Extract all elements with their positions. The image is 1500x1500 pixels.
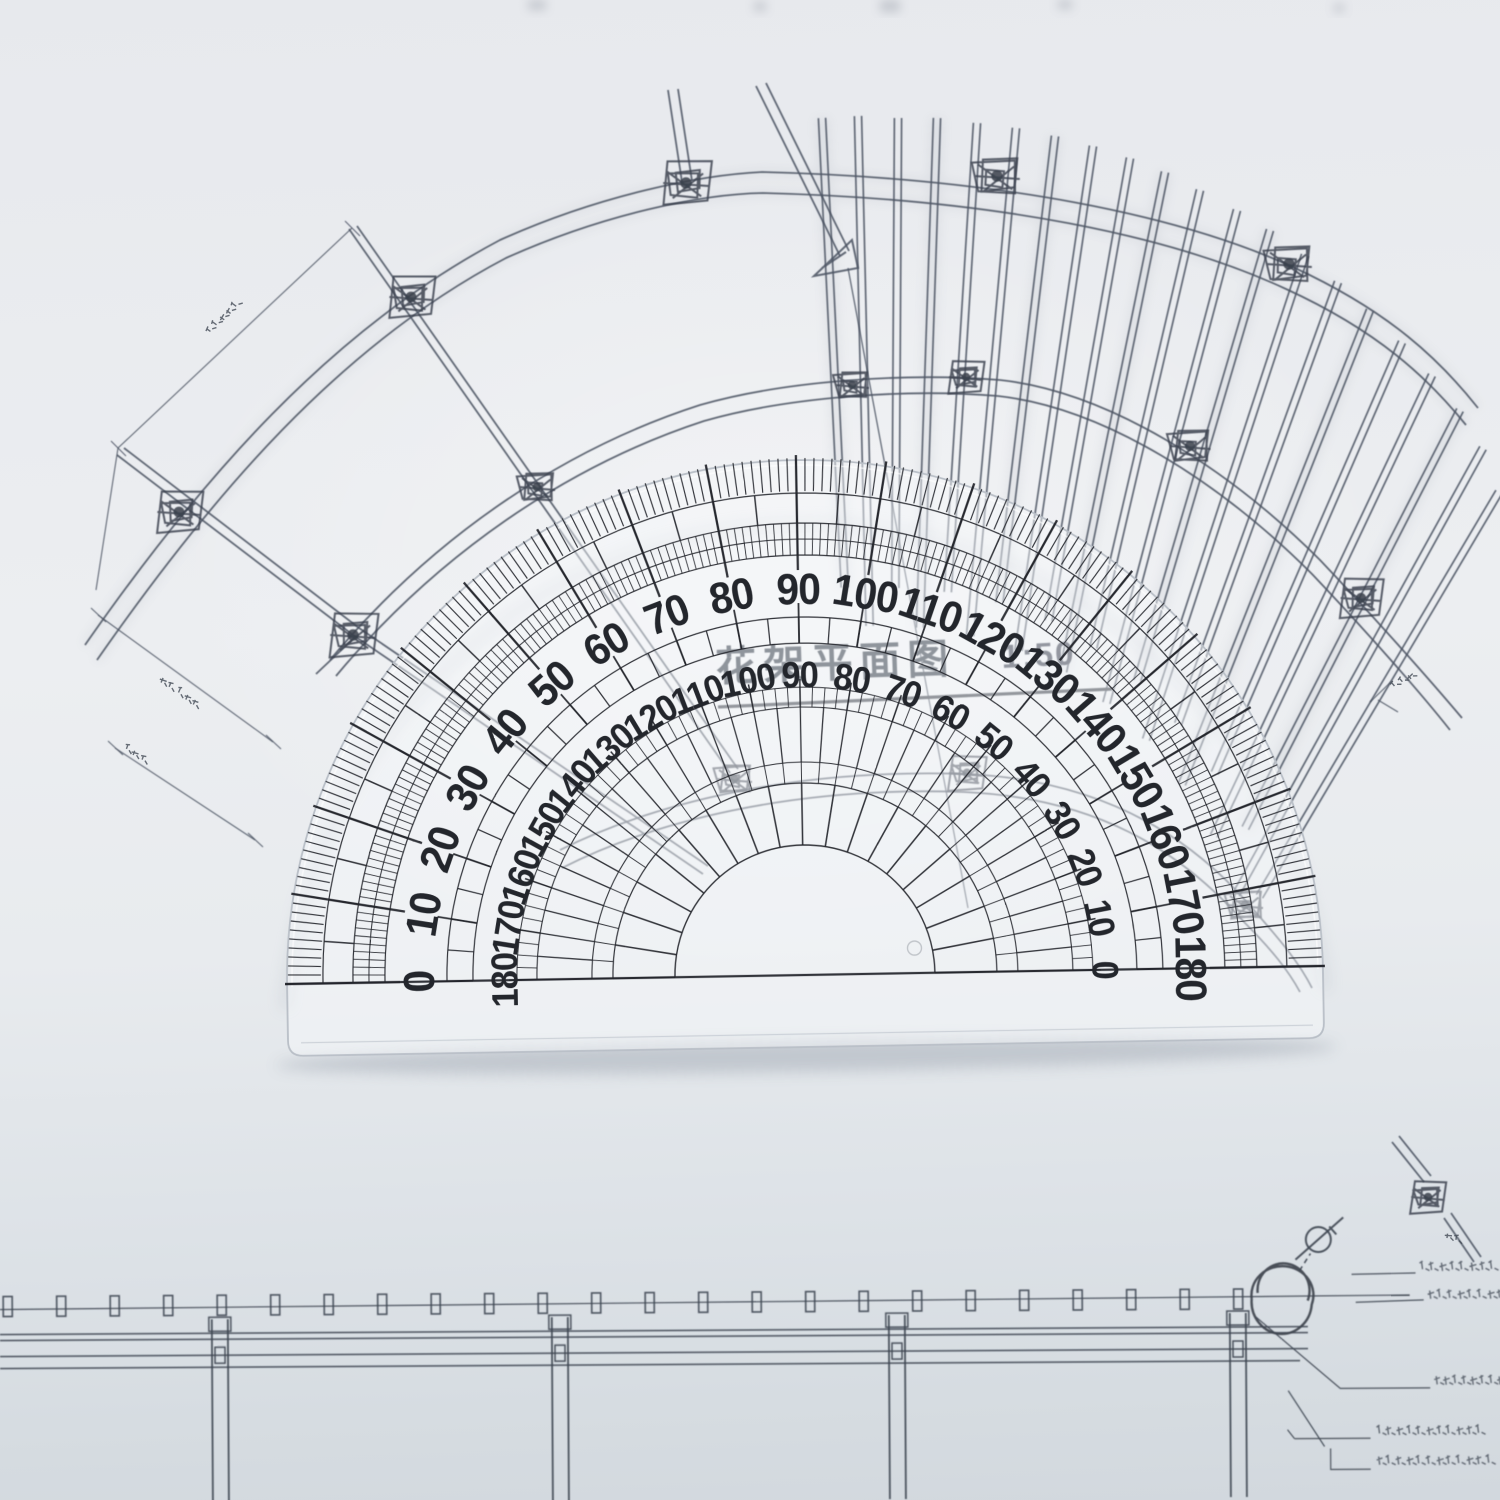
elevation-column — [886, 1313, 909, 1499]
illegible-text — [1419, 1260, 1498, 1271]
illegible-text — [1377, 1454, 1496, 1465]
detail-callout-leader — [1299, 1254, 1310, 1271]
annotation-leaders — [1256, 1273, 1431, 1470]
paper-blemishes — [528, 0, 1344, 12]
elevation-column — [209, 1317, 232, 1500]
rafter-end — [1180, 1289, 1189, 1309]
rafter-end — [3, 1297, 12, 1317]
rafter-end — [110, 1296, 119, 1316]
rafter-end — [378, 1294, 387, 1314]
illegible-annotations — [1375, 1260, 1500, 1465]
beam-stub-top — [668, 89, 692, 182]
rafter-end — [164, 1296, 173, 1316]
rafter-end — [859, 1291, 868, 1311]
outer-degree-80: 80 — [705, 569, 757, 625]
elevation-drawing — [0, 1216, 1500, 1500]
illegible-text — [1434, 1375, 1500, 1386]
elevation-beams — [0, 1327, 1308, 1369]
rafter-end — [913, 1291, 922, 1311]
rafter-end — [1073, 1290, 1082, 1310]
rafter-end — [1127, 1290, 1136, 1310]
illegible-text — [1428, 1288, 1500, 1299]
rafter-end — [485, 1294, 494, 1314]
inner-degree-180: 180 — [484, 952, 526, 1007]
illegible-text — [204, 297, 243, 334]
plan-node — [1410, 1181, 1446, 1213]
rafter-end — [1234, 1289, 1243, 1309]
plan-node — [948, 361, 984, 394]
rafter-end — [217, 1295, 226, 1315]
outer-degree-10: 10 — [397, 889, 452, 940]
rafter-end — [271, 1295, 280, 1315]
elevation-column — [549, 1315, 572, 1500]
outer-degree-100: 100 — [829, 565, 901, 623]
outer-degree-90: 90 — [776, 565, 820, 614]
rafter-end — [324, 1295, 333, 1315]
elevation-top-rail — [0, 1295, 1410, 1310]
rafter-end — [57, 1296, 66, 1316]
rafter-end — [966, 1291, 975, 1311]
inner-degree-90: 90 — [781, 654, 818, 696]
rafter-end — [538, 1293, 547, 1313]
illegible-text — [159, 674, 204, 709]
inner-degree-80: 80 — [831, 655, 874, 702]
elevation-columns — [209, 1311, 1250, 1500]
outer-degree-180: 180 — [1165, 935, 1215, 1001]
photo-stage: 花架平面图 1:50 01020304050607080901001101201… — [0, 0, 1500, 1500]
scene-photo: 花架平面图 1:50 01020304050607080901001101201… — [0, 0, 1500, 1500]
illegible-text — [1376, 1425, 1485, 1436]
rafter-end — [1020, 1290, 1029, 1310]
detail-callout-circle — [1251, 1263, 1313, 1334]
rafter-end — [431, 1294, 440, 1314]
section-symbol — [1295, 1217, 1343, 1259]
inner-degree-0: 0 — [1084, 960, 1126, 979]
elevation-column — [1227, 1311, 1250, 1497]
outer-degree-0: 0 — [395, 970, 444, 993]
illegible-text — [123, 743, 151, 765]
